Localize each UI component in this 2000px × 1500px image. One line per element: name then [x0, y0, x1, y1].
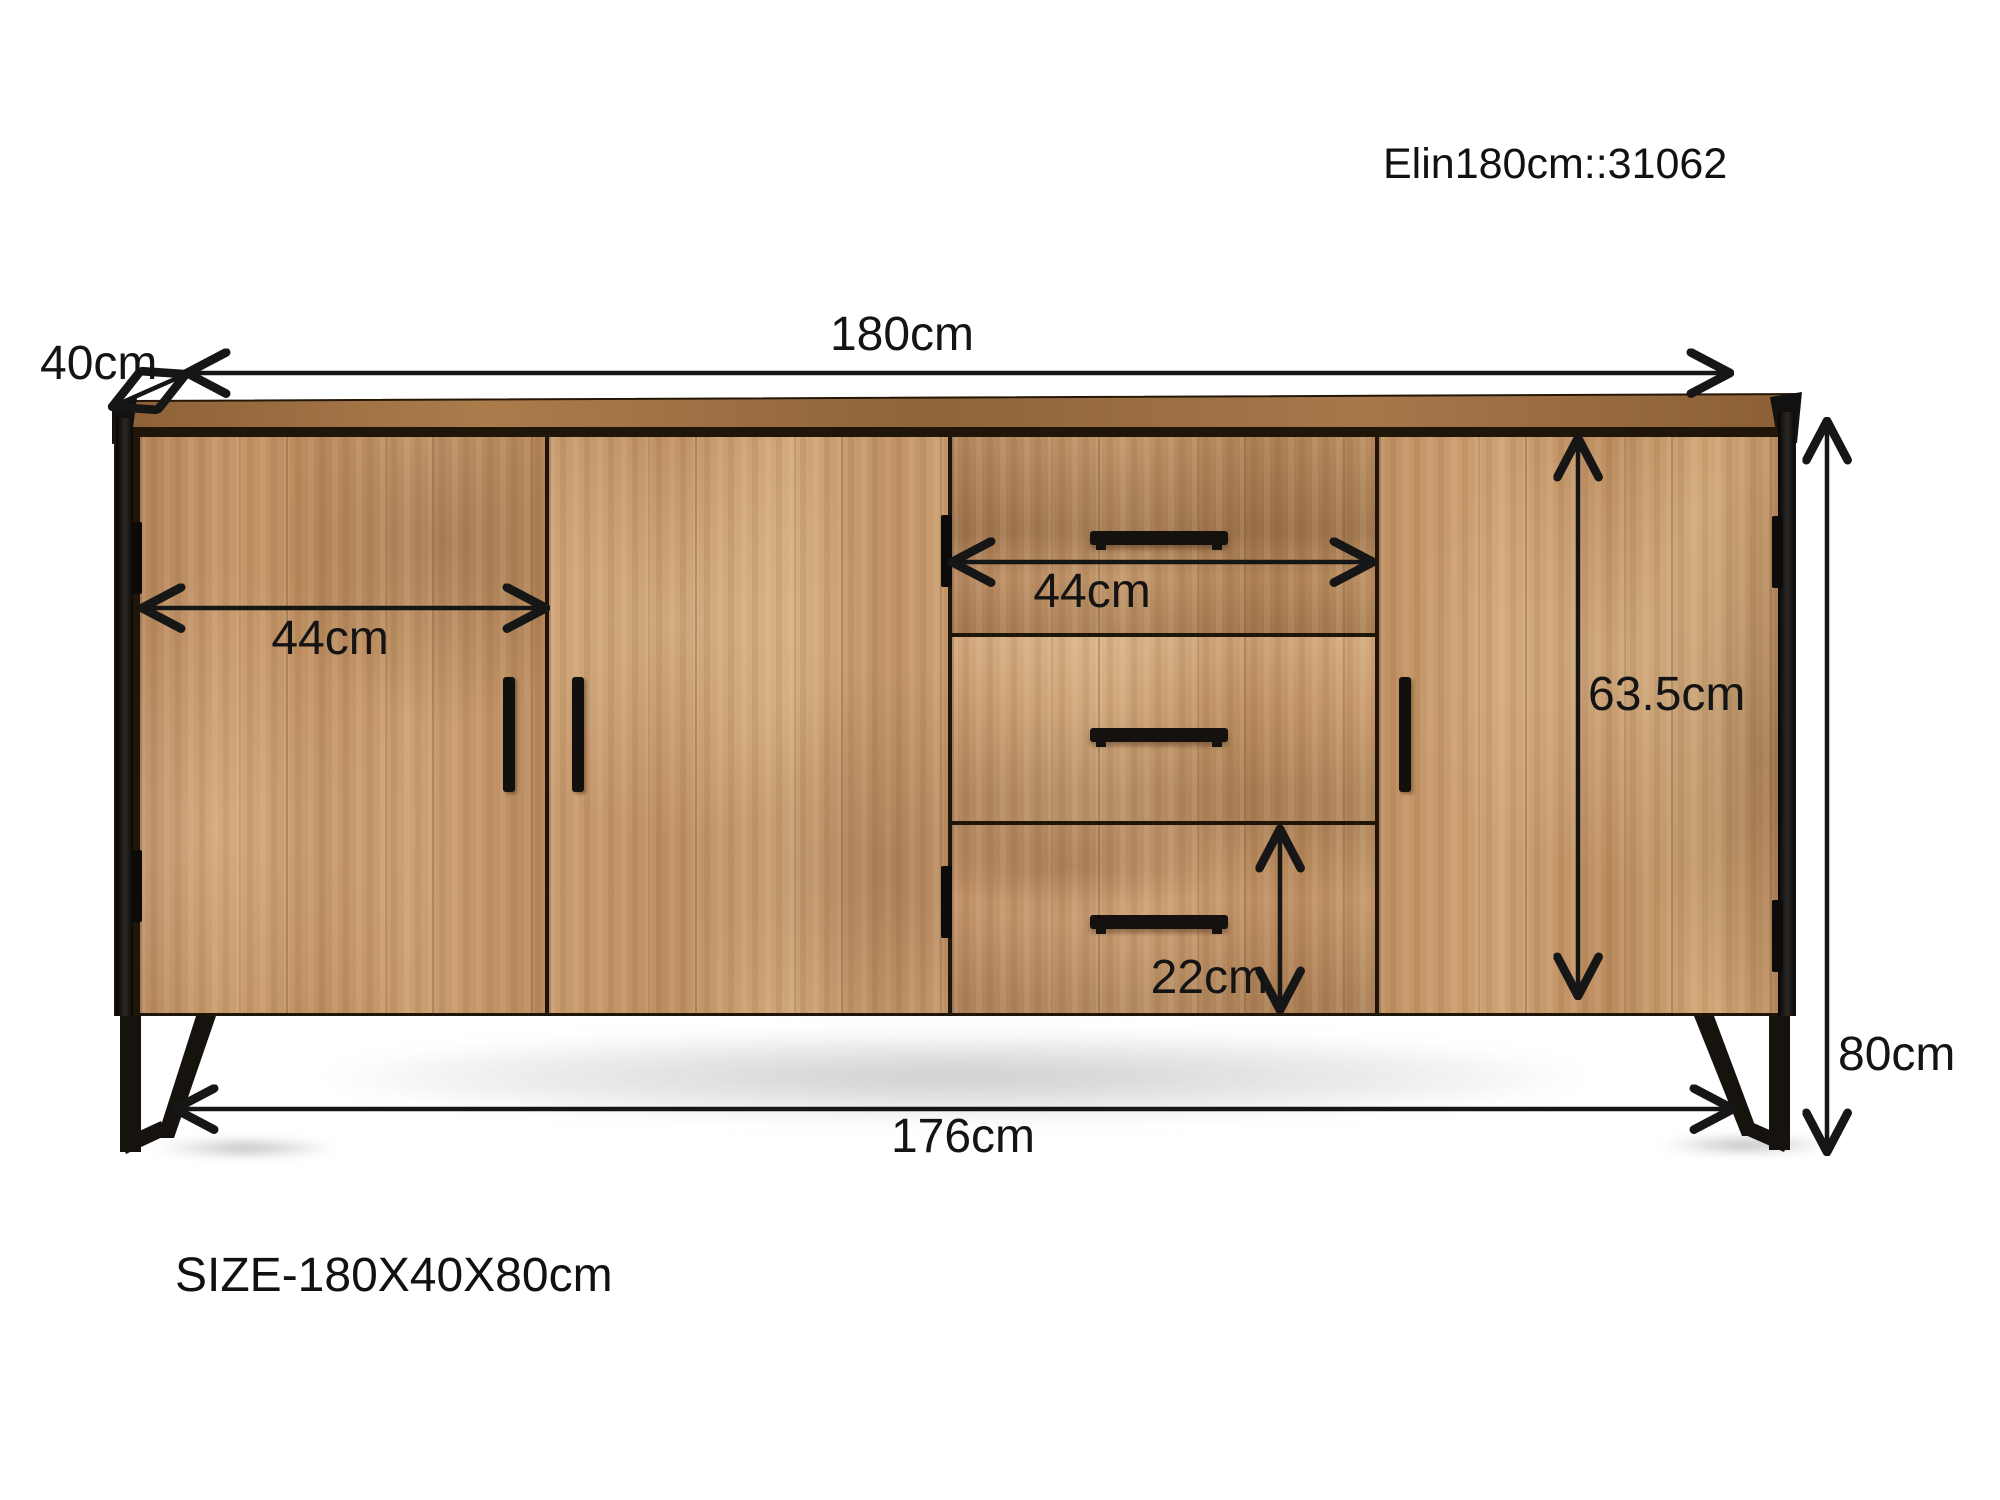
top-drawer-handle: [1090, 531, 1228, 545]
sideboard-dimension-diagram: Elin180cm::31062: [0, 0, 2000, 1500]
left-door-handle: [503, 677, 515, 792]
left-metal-frame: [116, 418, 133, 1016]
left-top-hinge: [131, 522, 142, 594]
base-width-label: 176cm: [863, 1112, 1063, 1162]
left-door-width-label: 44cm: [230, 614, 430, 664]
right-door-panel: [1379, 437, 1778, 1013]
door-height-label: 63.5cm: [1588, 670, 1745, 720]
top-width-label: 180cm: [802, 310, 1002, 360]
right-door-handle: [1399, 677, 1411, 792]
right-bottom-hinge: [1772, 900, 1783, 972]
center-top-hinge: [941, 515, 952, 587]
left-leg-shadow: [115, 1135, 375, 1161]
left-bottom-hinge: [131, 850, 142, 922]
left-door-panel: [140, 437, 545, 1013]
overall-height-label: 80cm: [1838, 1030, 1955, 1080]
center-bottom-hinge: [941, 866, 952, 938]
drawer-width-label: 44cm: [992, 567, 1192, 617]
center-left-door-panel: [549, 437, 948, 1013]
bottom-drawer-height-label: 22cm: [1068, 953, 1268, 1003]
product-code: Elin180cm::31062: [1383, 140, 1727, 189]
depth-label: 40cm: [40, 339, 157, 389]
right-top-hinge: [1772, 516, 1783, 588]
size-caption: SIZE-180X40X80cm: [175, 1248, 613, 1303]
center-left-door-handle: [572, 677, 584, 792]
middle-drawer-handle: [1090, 728, 1228, 742]
bottom-drawer-handle: [1090, 915, 1228, 929]
right-leg-shadow: [1625, 1132, 1865, 1158]
